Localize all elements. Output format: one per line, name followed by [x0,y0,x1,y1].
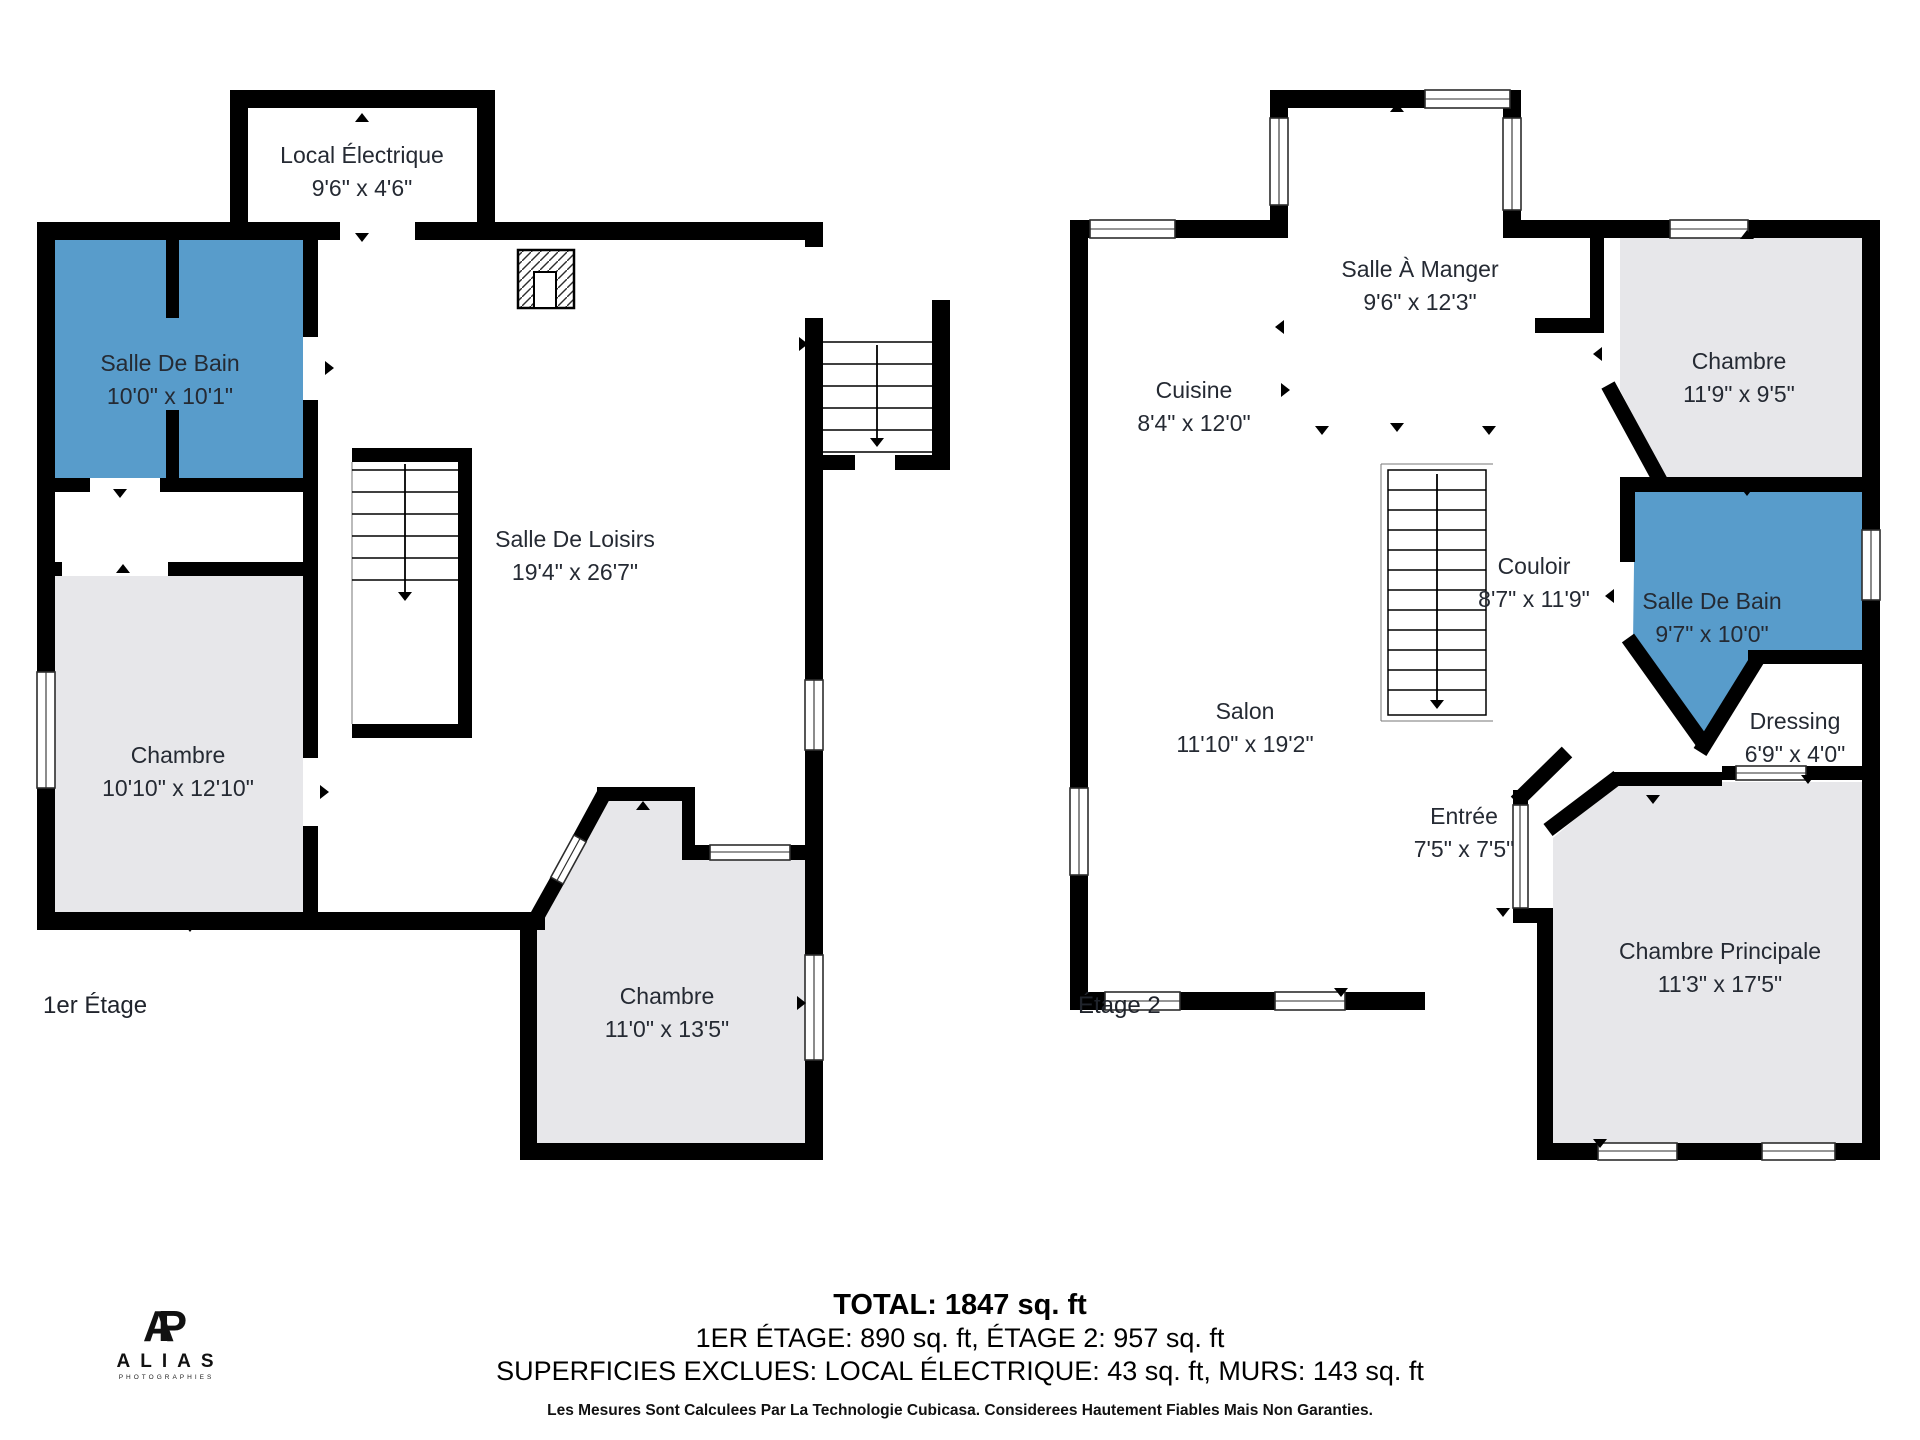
floor1-caption: 1er Étage [43,992,147,1020]
room-dims: 11'10" x 19'2" [1176,728,1313,761]
room-label-cuisine: Cuisine 8'4" x 12'0" [1137,374,1250,440]
room-dims: 11'9" x 9'5" [1683,378,1795,411]
room-name: Chambre Principale [1619,935,1821,968]
room-name: Couloir [1478,550,1590,583]
alias-brand-name: ALIAS [95,1351,245,1373]
window-icon [1598,1143,1677,1160]
room-name: Salle De Bain [1642,585,1781,618]
window-icon [1762,1143,1835,1160]
room-label-dressing: Dressing 6'9" x 4'0" [1745,705,1846,771]
room-dims: 7'5" x 7'5" [1414,833,1515,866]
window-icon [805,955,823,1060]
closet-door-icon [710,845,790,860]
room-label-salle-de-bain-2: Salle De Bain 9'7" x 10'0" [1642,585,1781,651]
room-label-chambre-1: Chambre 10'10" x 12'10" [102,739,254,805]
room-label-salon: Salon 11'10" x 19'2" [1176,695,1313,761]
room-name: Chambre [1683,345,1795,378]
room-dims: 10'0" x 10'1" [100,380,239,413]
room-label-salle-de-loisirs: Salle De Loisirs 19'4" x 26'7" [495,523,655,589]
room-name: Local Électrique [280,139,444,172]
room-label-chambre-3: Chambre 11'9" x 9'5" [1683,345,1795,411]
room-name: Salon [1176,695,1313,728]
room-name: Chambre [102,739,254,772]
alias-logo: AP ALIAS PHOTOGRAPHIES [95,1305,235,1381]
staircase-floor2-icon [1381,464,1493,721]
window-icon [1090,220,1175,238]
room-dims: 8'4" x 12'0" [1137,407,1250,440]
disclaimer-text: Les Mesures Sont Calculees Par La Techno… [0,1402,1920,1420]
room-dims: 9'7" x 10'0" [1642,618,1781,651]
window-icon [1425,90,1510,108]
room-name: Salle De Loisirs [495,523,655,556]
window-icon [1270,118,1288,205]
room-dims: 9'6" x 4'6" [280,172,444,205]
room-name: Chambre [605,980,729,1013]
room-name: Cuisine [1137,374,1250,407]
room-label-chambre-2: Chambre 11'0" x 13'5" [605,980,729,1046]
room-label-entree: Entrée 7'5" x 7'5" [1414,800,1515,866]
window-icon [1670,220,1748,238]
total-area: TOTAL: 1847 sq. ft [0,1288,1920,1322]
window-icon [1513,805,1528,908]
fireplace-icon [518,250,574,308]
room-label-couloir: Couloir 8'7" x 11'9" [1478,550,1590,616]
room-dims: 11'3" x 17'5" [1619,968,1821,1001]
room-dims: 8'7" x 11'9" [1478,583,1590,616]
room-dims: 10'10" x 12'10" [102,772,254,805]
excluded-areas: SUPERFICIES EXCLUES: LOCAL ÉLECTRIQUE: 4… [0,1355,1920,1388]
staircase-floor1-icon [352,462,458,724]
window-icon [37,672,55,788]
window-icon [1070,788,1088,875]
room-name: Salle De Bain [100,347,239,380]
room-name: Entrée [1414,800,1515,833]
room-label-salle-de-bain-1: Salle De Bain 10'0" x 10'1" [100,347,239,413]
room-label-local-electrique: Local Électrique 9'6" x 4'6" [280,139,444,205]
floor2-caption: Étage 2 [1078,992,1161,1020]
room-name: Salle À Manger [1341,253,1498,286]
area-summary: TOTAL: 1847 sq. ft 1ER ÉTAGE: 890 sq. ft… [0,1288,1920,1420]
room-dims: 19'4" x 26'7" [495,556,655,589]
staircase-floor1-right-icon [823,342,932,452]
floorplan-page: { "document_type": "floor-plan", "colors… [0,0,1920,1440]
room-dims: 11'0" x 13'5" [605,1013,729,1046]
window-icon [1862,530,1880,600]
monogram-p: P [158,1302,187,1351]
room-name: Dressing [1745,705,1846,738]
window-icon [805,680,823,750]
room-dims: 9'6" x 12'3" [1341,286,1498,319]
floor-areas: 1ER ÉTAGE: 890 sq. ft, ÉTAGE 2: 957 sq. … [0,1322,1920,1355]
alias-monogram-icon: AP [95,1305,235,1349]
floor1-plan [37,90,950,1160]
room-label-salle-a-manger: Salle À Manger 9'6" x 12'3" [1341,253,1498,319]
window-icon [1503,118,1521,210]
room-label-chambre-principale: Chambre Principale 11'3" x 17'5" [1619,935,1821,1001]
alias-tagline: PHOTOGRAPHIES [95,1374,238,1381]
window-icon [1275,992,1345,1010]
floorplan-drawing [0,0,1920,1440]
room-dims: 6'9" x 4'0" [1745,738,1846,771]
